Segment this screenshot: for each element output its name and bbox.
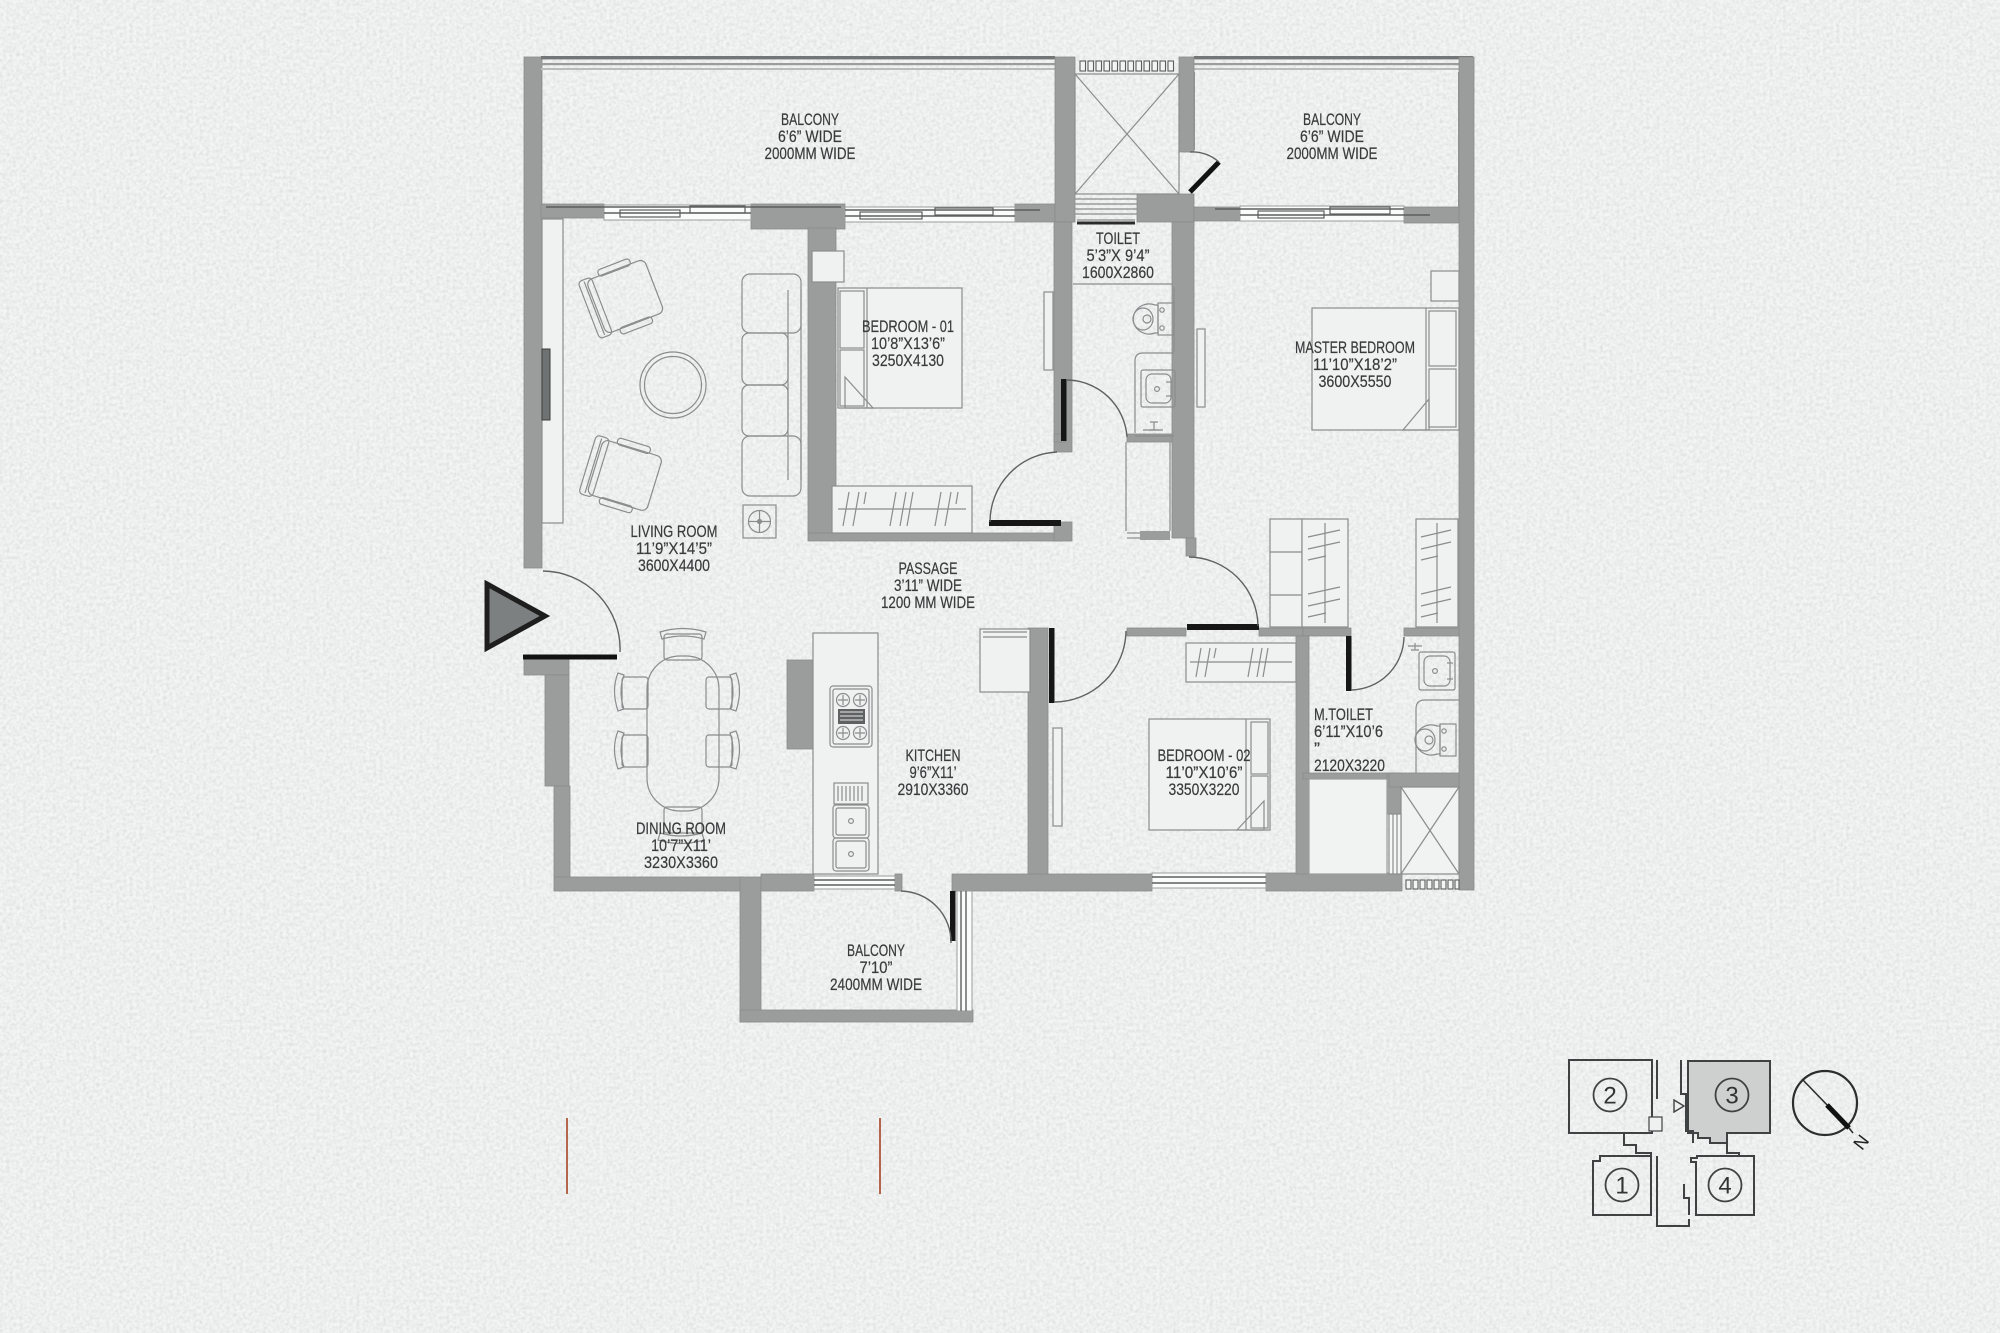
svg-text:2: 2 xyxy=(1603,1083,1616,1110)
svg-text:3250X4130: 3250X4130 xyxy=(872,351,944,370)
svg-text:3600X5550: 3600X5550 xyxy=(1319,372,1392,391)
svg-text:2000MM WIDE: 2000MM WIDE xyxy=(1287,144,1378,163)
svg-text:1200 MM WIDE: 1200 MM WIDE xyxy=(881,593,975,612)
svg-text:1600X2860: 1600X2860 xyxy=(1082,263,1154,282)
svg-text:3350X3220: 3350X3220 xyxy=(1169,780,1240,799)
svg-text:3600X4400: 3600X4400 xyxy=(638,556,710,575)
svg-text:1: 1 xyxy=(1615,1173,1628,1200)
svg-text:3230X3360: 3230X3360 xyxy=(644,853,718,872)
svg-text:2000MM WIDE: 2000MM WIDE xyxy=(765,144,856,163)
svg-text:3: 3 xyxy=(1725,1083,1738,1110)
svg-text:2400MM WIDE: 2400MM WIDE xyxy=(830,975,922,994)
svg-text:6’11”X10’6: 6’11”X10’6 xyxy=(1314,722,1383,741)
svg-text:2120X3220: 2120X3220 xyxy=(1314,756,1385,775)
svg-text:2910X3360: 2910X3360 xyxy=(898,780,969,799)
svg-text:4: 4 xyxy=(1718,1173,1731,1200)
